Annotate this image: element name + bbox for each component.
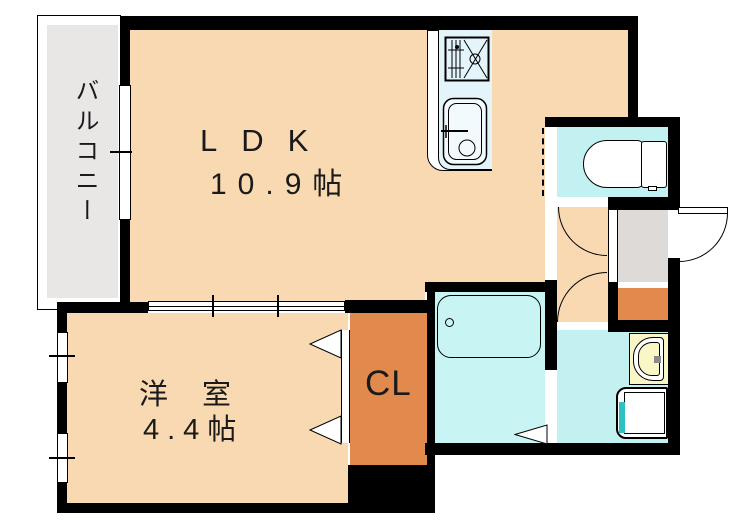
ldk-area-label: 10.9帖 [210,159,353,203]
wall-western-bottom [57,503,350,513]
balcony-window-tick [110,151,132,153]
washing-machine-icon [624,392,665,434]
entrance-step-strip [608,210,618,282]
wall-right-upper [628,30,638,127]
toilet-tank-icon [641,141,667,188]
bathtub-icon [437,295,541,358]
wall-toilet-top [545,117,678,127]
wall-bottom-wet-area [425,443,680,455]
wall-entrance-post [608,280,618,332]
ldk-room-upper [130,30,628,117]
western-room-area-label: 4.4帖 [143,406,244,448]
wall-toilet-bottom [608,197,680,210]
wall-bathroom-top [425,282,557,292]
toilet-button-icon [648,186,657,191]
sliding-door-rail [149,306,344,307]
ldk-label: LDK [200,123,332,159]
balcony-label: バルコニー [67,78,102,228]
wall-outer-right-b [668,258,680,455]
wall-mid-left [58,302,148,313]
wall-left-upper-b [120,220,130,302]
wall-western-left-b [57,383,67,433]
ldk-hall-opening [545,127,557,302]
toilet-door-opening [557,197,608,207]
western-window-upper [57,332,68,383]
kitchen-sink-icon [440,96,490,168]
bathtub-drain-icon [445,318,454,327]
floor-plan: バルコニー LDK 10.9帖 洋室 4.4帖 CL [0,0,755,530]
western-window-lower-tick [49,457,75,459]
closet-folding-door-lower-icon [309,415,342,445]
washing-machine-tap [619,402,625,433]
washroom-door-opening [557,322,608,330]
entry-door-arc [679,213,728,262]
vanity-faucet-icon [654,356,661,363]
wall-corner-block [348,465,435,513]
stove-icon [444,36,490,82]
wall-washroom-top [608,320,680,332]
wall-western-left-a [57,302,67,332]
wall-left-upper-a [120,30,130,85]
entrance-floor [617,207,668,282]
closet-label: CL [365,364,412,404]
toilet-partition-dashed-line [542,128,544,196]
toilet-bowl-icon [583,140,645,188]
bathroom-folding-door-icon [514,424,548,445]
ldk-western-sliding-door [148,301,345,311]
sliding-door-tick-1 [212,295,214,317]
entrance-step [617,288,668,320]
wall-closet-right [427,282,435,465]
sliding-door-tick-2 [277,295,279,317]
wall-mid-right [345,300,433,313]
wall-western-left-c [57,483,67,505]
western-window-upper-tick [49,355,75,357]
wall-bath-wash-divider [545,292,557,370]
closet-door-strip [341,330,350,443]
wall-top [120,16,638,30]
closet-folding-door-upper-icon [309,329,342,359]
